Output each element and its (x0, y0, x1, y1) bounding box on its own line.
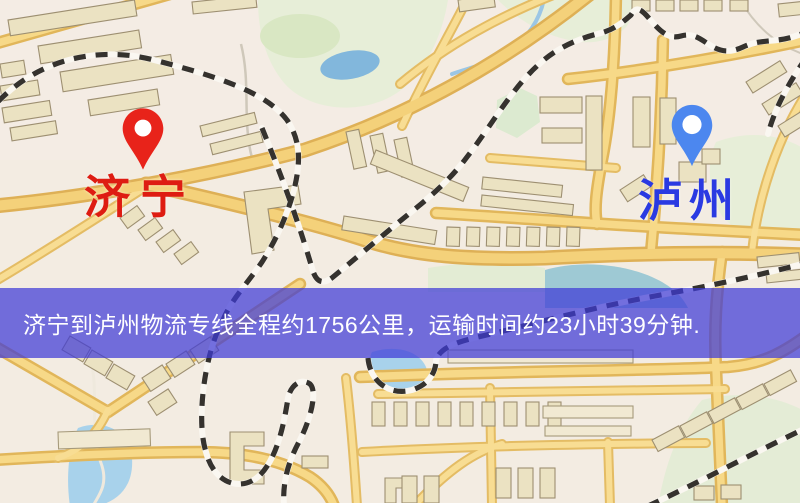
origin-pin[interactable] (120, 106, 166, 172)
destination-label: 泸州 (638, 179, 740, 224)
logistics-route-map: 济宁 泸州 济宁到泸州物流专线全程约1756公里，运输时间约23小时39分钟. (0, 0, 800, 503)
origin-label: 济宁 (84, 175, 196, 221)
route-info-text: 济宁到泸州物流专线全程约1756公里，运输时间约23小时39分钟. (23, 306, 700, 340)
map-canvas (0, 0, 800, 503)
destination-pin[interactable] (667, 103, 717, 168)
destination-pin-hole (682, 115, 701, 134)
destination-pin-icon (672, 105, 713, 166)
origin-pin-icon (123, 108, 164, 169)
origin-pin-hole (135, 120, 152, 137)
route-info-banner: 济宁到泸州物流专线全程约1756公里，运输时间约23小时39分钟. (0, 288, 800, 358)
